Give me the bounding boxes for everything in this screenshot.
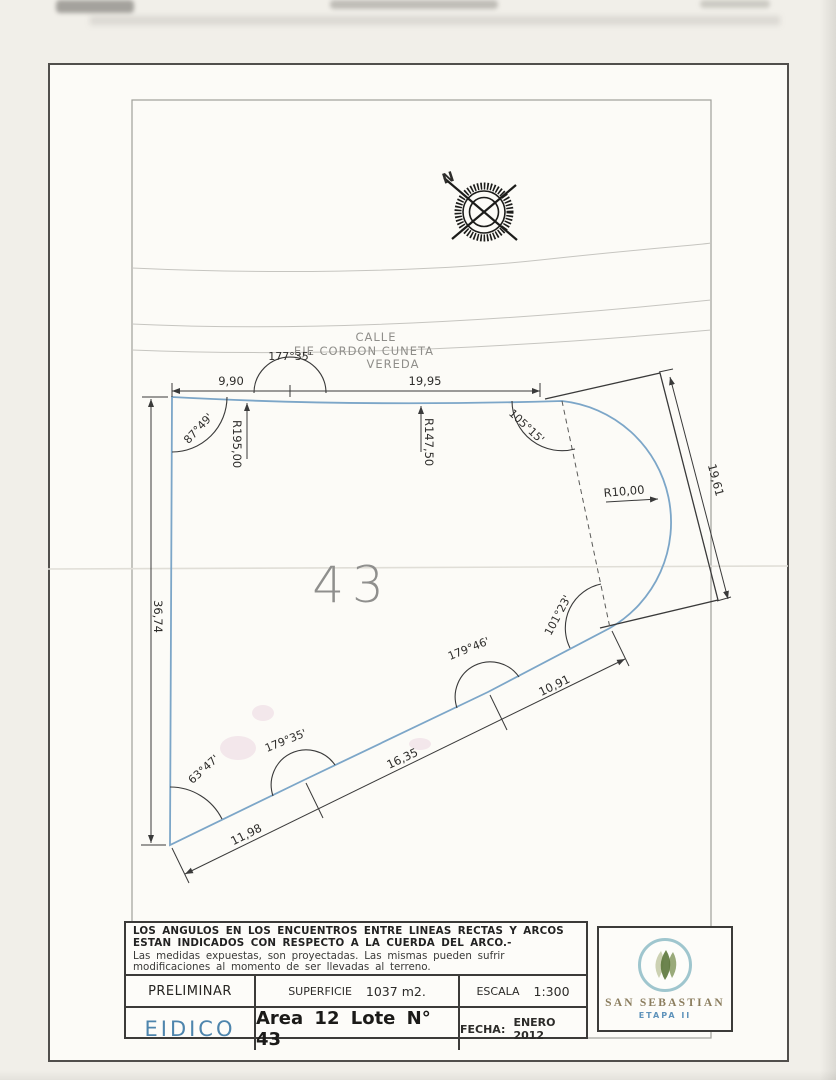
sheet-title: Area 12 Lote N° 43 (254, 1008, 458, 1050)
scan-artifact-line (48, 566, 788, 569)
compass-rose-icon (444, 178, 517, 240)
scanned-survey-plan: N CALLE EJE CORDON CUNETA VEREDA 9,90 19… (0, 0, 836, 1080)
title-block: LOS ANGULOS EN LOS ENCUENTROS ENTRE LINE… (124, 921, 588, 1039)
superficie-value: 1037 m2. (366, 984, 426, 999)
angle-bottom-3-label: 179°46' (446, 635, 491, 663)
company-logo-text: EIDICO (126, 1008, 254, 1050)
leaf-logo-icon (638, 938, 692, 992)
developer-stage: ETAPA II (639, 1011, 692, 1020)
title-block-row-2: EIDICO Area 12 Lote N° 43 FECHA: ENERO 2… (126, 1006, 586, 1050)
radius-top-arc-2-label: R147,50 (422, 418, 436, 466)
street-lines (132, 243, 711, 353)
escala-cell: ESCALA 1:300 (458, 976, 586, 1006)
note-measures: Las medidas expuestas, son proyectadas. … (133, 951, 580, 975)
escala-value: 1:300 (534, 984, 570, 999)
street-label-vereda: VEREDA (367, 357, 420, 371)
street-label-eje-cordon: EJE CORDON CUNETA (294, 344, 434, 358)
fecha-value: ENERO 2012 (513, 1016, 586, 1042)
superficie-cell: SUPERFICIE 1037 m2. (254, 976, 458, 1006)
dim-right-label: 19,61 (705, 462, 727, 497)
arc-chord-dashed (562, 401, 610, 628)
angle-bottom-left-label: 63°47' (186, 752, 222, 786)
dim-bottom-3-label: 10,91 (536, 672, 572, 699)
angle-bottom-2-label: 179°35' (263, 727, 308, 755)
street-label-calle: CALLE (356, 330, 397, 344)
fecha-label: FECHA: (460, 1023, 505, 1036)
superficie-label: SUPERFICIE (288, 985, 352, 998)
lot-number: 43 (312, 556, 392, 614)
angle-top-right-label: 105°15' (506, 407, 547, 446)
angle-top-middle-label: 177°35' (268, 350, 312, 363)
radius-leaders (247, 403, 658, 502)
escala-label: ESCALA (476, 985, 519, 998)
leaf-icon (645, 945, 685, 985)
radius-top-arc-1-label: R195,00 (230, 420, 244, 468)
dim-top-1-label: 9,90 (218, 374, 244, 388)
plot-drawing: N CALLE EJE CORDON CUNETA VEREDA 9,90 19… (0, 0, 836, 1080)
dimension-top (142, 383, 540, 397)
fecha-cell: FECHA: ENERO 2012 (458, 1008, 586, 1050)
lot-boundary (170, 397, 671, 845)
developer-name: SAN SEBASTIAN (605, 997, 725, 1009)
dim-left-label: 36,74 (151, 600, 165, 633)
angle-bottom-right-label: 101°23' (542, 593, 574, 638)
radius-corner-arc-label: R10,00 (603, 482, 645, 500)
developer-logo-box: SAN SEBASTIAN ETAPA II (597, 926, 733, 1032)
north-label: N (440, 169, 456, 188)
dim-top-2-label: 19,95 (409, 374, 442, 388)
note-angles: LOS ANGULOS EN LOS ENCUENTROS ENTRE LINE… (133, 926, 580, 950)
title-block-notes: LOS ANGULOS EN LOS ENCUENTROS ENTRE LINE… (126, 923, 586, 974)
status-label: PRELIMINAR (126, 976, 254, 1006)
angle-top-left-label: 87°49' (181, 411, 215, 447)
title-block-row-1: PRELIMINAR SUPERFICIE 1037 m2. ESCALA 1:… (126, 974, 586, 1006)
